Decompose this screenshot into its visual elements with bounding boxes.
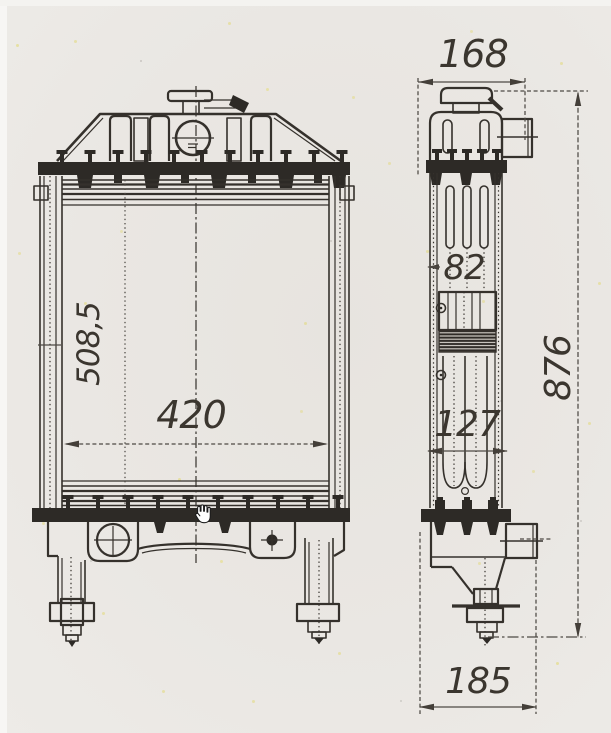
mounting-leg-left — [50, 556, 94, 647]
outlet-pipe-bottom — [500, 524, 552, 558]
side-bottom-header — [421, 497, 511, 535]
side-core-column — [430, 173, 502, 508]
overflow-pipe-end — [229, 95, 249, 113]
right-frame-tab — [340, 186, 354, 200]
mounting-bolt-right — [297, 604, 339, 621]
dimension-annotations: 508,5 420 168 82 127 — [38, 32, 588, 714]
radiator-drawing: 508,5 420 168 82 127 — [0, 0, 611, 733]
top-header-nuts — [77, 175, 346, 188]
dim-side-bottom-width-label: 185 — [445, 661, 511, 702]
filler-cap — [168, 91, 249, 114]
side-filler-cap — [441, 88, 502, 113]
outlet-pipe-top — [497, 119, 538, 157]
dim-side-lower-width-label: 127 — [434, 404, 501, 445]
dim-side-overall-height-label: 876 — [538, 335, 579, 401]
left-frame-tab — [34, 186, 48, 200]
mounting-leg-right — [297, 538, 339, 644]
rubber-pad — [439, 330, 496, 352]
side-view — [421, 88, 552, 648]
mounting-bolt-left — [50, 603, 94, 621]
side-bottom-tank — [431, 522, 552, 648]
dim-front-height-label: 508,5 — [71, 302, 107, 386]
top-header-studs — [57, 150, 348, 163]
scanned-drawing-page[interactable]: 508,5 420 168 82 127 — [0, 0, 611, 733]
drain-plug — [474, 589, 498, 604]
dim-front-width-label: 420 — [156, 393, 226, 437]
dim-side-core-width-label: 82 — [443, 248, 484, 288]
dim-side-top-width-label: 168 — [438, 32, 508, 76]
